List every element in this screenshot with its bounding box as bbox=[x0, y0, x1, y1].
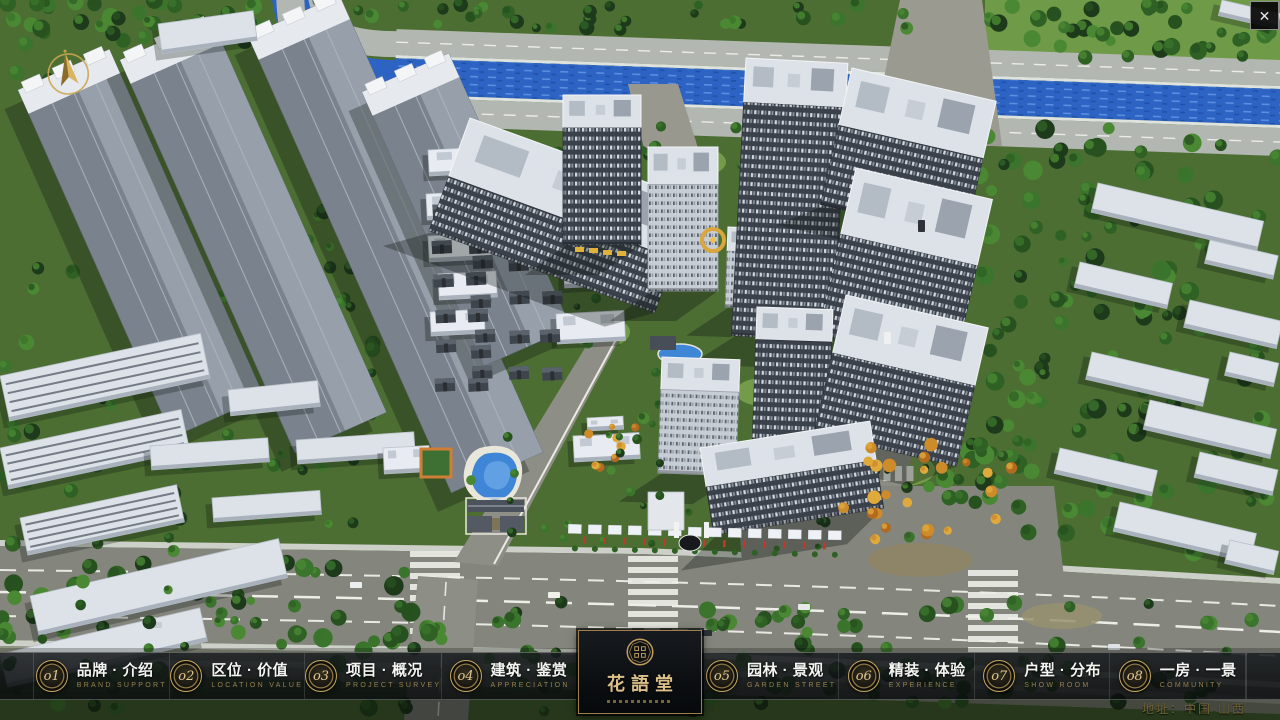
logo-title: 花語堂 bbox=[601, 670, 679, 696]
aerial-render-viewport[interactable] bbox=[0, 0, 1280, 720]
nav-label-en: SHOW ROOM bbox=[1024, 682, 1101, 689]
nav-label-en: PROJECT SURVEY bbox=[346, 682, 441, 689]
nav-label-zh: 园林 · 景观 bbox=[747, 663, 836, 678]
nav-number-badge-5: o5 bbox=[706, 660, 738, 692]
nav-label-en: GARDEN STREET bbox=[747, 682, 836, 689]
nav-item-garden[interactable]: o5 园林 · 景观 GARDEN STREET bbox=[704, 653, 840, 699]
nav-label-zh: 一房 · 一景 bbox=[1160, 663, 1237, 678]
nav-item-architecture[interactable]: o4 建筑 · 鉴赏 APPRECIATION bbox=[442, 653, 578, 699]
nav-number-badge-8: o8 bbox=[1119, 660, 1151, 692]
nav-label-en: LOCATION VALUE bbox=[211, 682, 303, 689]
nav-item-views[interactable]: o8 一房 · 一景 COMMUNITY bbox=[1110, 653, 1246, 699]
close-button[interactable]: ✕ bbox=[1250, 1, 1279, 30]
nav-label-zh: 品牌 · 介绍 bbox=[77, 663, 167, 678]
nav-label-zh: 建筑 · 鉴赏 bbox=[491, 663, 570, 678]
nav-item-project[interactable]: o3 项目 · 概况 PROJECT SURVEY bbox=[305, 653, 442, 699]
nav-item-floorplan[interactable]: o7 户型 · 分布 SHOW ROOM bbox=[975, 653, 1111, 699]
nav-item-location[interactable]: o2 区位 · 价值 LOCATION VALUE bbox=[170, 653, 306, 699]
nav-label-zh: 户型 · 分布 bbox=[1024, 663, 1101, 678]
nav-number-badge-3: o3 bbox=[305, 660, 337, 692]
navbar-edge-right bbox=[1246, 653, 1280, 699]
nav-item-brand[interactable]: o1 品牌 · 介绍 BRAND SUPPORT bbox=[34, 653, 170, 699]
logo-subtext-line bbox=[607, 700, 673, 703]
close-icon: ✕ bbox=[1259, 9, 1271, 23]
presentation-window: ✕ o1 品牌 · 介绍 BRAND SUPPORT o2 区位 · 价值 LO… bbox=[0, 0, 1280, 720]
nav-number-badge-2: o2 bbox=[170, 660, 202, 692]
nav-label-zh: 项目 · 概况 bbox=[346, 663, 441, 678]
project-address: 地址：中国·山西 bbox=[1142, 700, 1246, 717]
nav-label-zh: 区位 · 价值 bbox=[211, 663, 303, 678]
nav-label-zh: 精装 · 体验 bbox=[889, 663, 966, 678]
nav-number-badge-7: o7 bbox=[983, 660, 1015, 692]
nav-label-en: COMMUNITY bbox=[1160, 682, 1237, 689]
navbar-edge-left bbox=[0, 653, 34, 699]
nav-label-en: BRAND SUPPORT bbox=[77, 682, 167, 689]
nav-item-interior[interactable]: o6 精装 · 体验 EXPERIENCE bbox=[839, 653, 975, 699]
project-logo-plate: 花語堂 bbox=[578, 630, 702, 714]
nav-label-en: APPRECIATION bbox=[491, 682, 570, 689]
nav-number-badge-1: o1 bbox=[36, 660, 68, 692]
nav-number-badge-4: o4 bbox=[450, 660, 482, 692]
nav-number-badge-6: o6 bbox=[848, 660, 880, 692]
nav-label-en: EXPERIENCE bbox=[889, 682, 966, 689]
logo-seal-icon bbox=[625, 637, 655, 667]
